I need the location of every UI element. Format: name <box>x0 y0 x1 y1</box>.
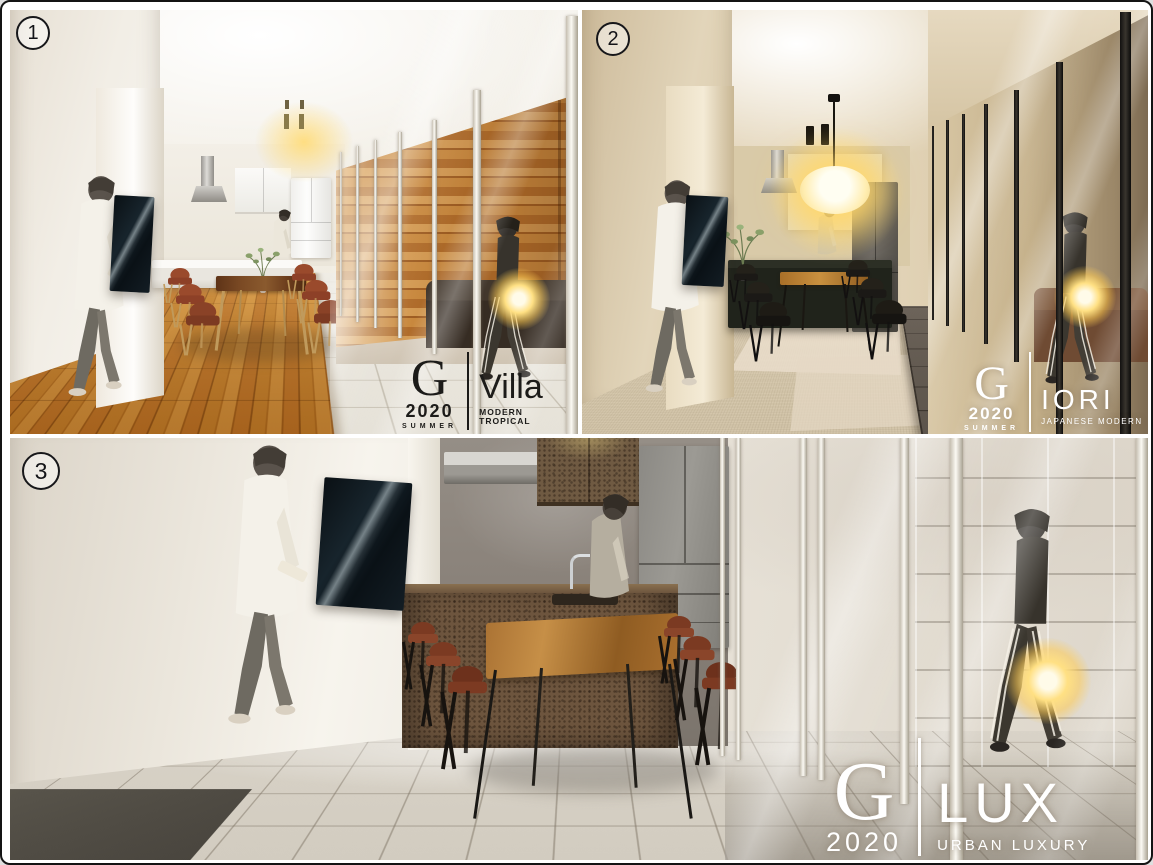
logo-brand-letter: G <box>411 358 449 400</box>
logo-brand-letter: G <box>974 365 1009 403</box>
partition-mullion <box>374 140 377 328</box>
panel-iori: G 2020 SUMMER IORI JAPANESE MODERN 2 <box>582 10 1148 434</box>
table-leg <box>626 664 637 788</box>
logo-left-block: G 2020 SUMMER <box>402 358 457 430</box>
panel-villa: G 2020 SUMMER Villa MODERN TROPICAL 1 <box>10 10 578 434</box>
table-leg <box>238 290 242 334</box>
partition-mullion <box>946 120 949 326</box>
logo-brand-letter: G <box>834 758 895 825</box>
panel-number-badge: 1 <box>16 16 50 50</box>
panel-number: 2 <box>607 28 618 51</box>
standing-person-kitchen <box>558 484 652 626</box>
fridge-drawer-line <box>639 563 729 565</box>
partition-mullion <box>720 438 725 756</box>
partition-mullion <box>736 438 741 760</box>
wall-tv <box>316 477 413 611</box>
ceiling-light-cap <box>300 100 304 109</box>
range-hood <box>444 452 546 484</box>
partition-mullion <box>818 438 825 780</box>
ceiling-light-fixture <box>299 114 304 129</box>
table-leg <box>802 284 806 330</box>
spotlight <box>806 126 814 145</box>
table-leg <box>282 290 286 336</box>
pendant-cap <box>828 94 840 102</box>
panel-number-badge: 2 <box>596 22 630 56</box>
brand-logo: G 2020 SUMMER IORI JAPANESE MODERN <box>964 338 1146 432</box>
logo-name: LUX <box>937 774 1090 833</box>
logo-year: 2020 <box>406 402 454 420</box>
pendant-rod <box>833 100 835 172</box>
table-top <box>486 613 678 679</box>
tv-glare <box>110 195 155 293</box>
brand-logo: G 2020 SUMMER Villa MODERN TROPICAL <box>402 336 574 430</box>
partition-mullion <box>962 114 965 332</box>
partition-mullion <box>432 120 437 354</box>
partition-mullion <box>932 126 934 320</box>
faucet <box>570 554 590 589</box>
logo-tagline: JAPANESE MODERN <box>1041 418 1142 426</box>
logo-divider <box>467 352 469 430</box>
partition-mullion <box>340 152 342 316</box>
tv-glare <box>682 195 729 287</box>
partition-mullion <box>356 146 359 322</box>
fridge-door-line <box>684 446 686 563</box>
panel-number: 3 <box>35 458 48 485</box>
collage-frame: G 2020 SUMMER Villa MODERN TROPICAL 1 <box>0 0 1153 865</box>
logo-tagline: MODERN TROPICAL <box>479 408 574 426</box>
wall-tv <box>110 195 155 293</box>
logo-left-block: G 2020 SUMMER <box>964 365 1019 432</box>
panel-number: 1 <box>27 22 38 45</box>
logo-right-block: LUX URBAN LUXURY <box>937 774 1090 854</box>
partition-mullion <box>984 104 988 344</box>
tv-glare <box>316 477 413 611</box>
logo-season: SUMMER <box>402 423 457 430</box>
panel-number-badge: 3 <box>22 452 60 490</box>
partition-mullion <box>1014 90 1019 362</box>
logo-season: SUMMER <box>964 425 1019 432</box>
logo-divider <box>1029 352 1031 432</box>
partition-mullion <box>398 132 402 338</box>
logo-tagline: URBAN LUXURY <box>937 838 1090 854</box>
table-leg <box>532 668 543 786</box>
logo-right-block: Villa MODERN TROPICAL <box>479 370 574 426</box>
logo-name: Villa <box>479 370 574 406</box>
logo-name: IORI <box>1041 385 1142 414</box>
range-hood-chimney <box>201 156 214 188</box>
ceiling-light-cap <box>285 100 289 109</box>
pendant-shade <box>800 166 870 214</box>
logo-right-block: IORI JAPANESE MODERN <box>1041 385 1142 426</box>
logo-divider <box>918 738 921 856</box>
dining-table <box>216 272 306 354</box>
dining-table <box>486 618 678 830</box>
spotlight <box>821 124 829 145</box>
logo-year: 2020 <box>969 405 1015 422</box>
range-hood-canopy <box>191 186 227 202</box>
partition-mullion <box>800 438 807 776</box>
panel-lux: G 2020 LUX URBAN LUXURY 3 <box>10 438 1148 860</box>
brand-logo: G 2020 LUX URBAN LUXURY <box>826 730 1138 856</box>
logo-year: 2020 <box>826 829 902 856</box>
wall-tv <box>682 195 729 287</box>
logo-left-block: G 2020 <box>826 758 902 856</box>
ceiling-light-fixture <box>284 114 289 129</box>
